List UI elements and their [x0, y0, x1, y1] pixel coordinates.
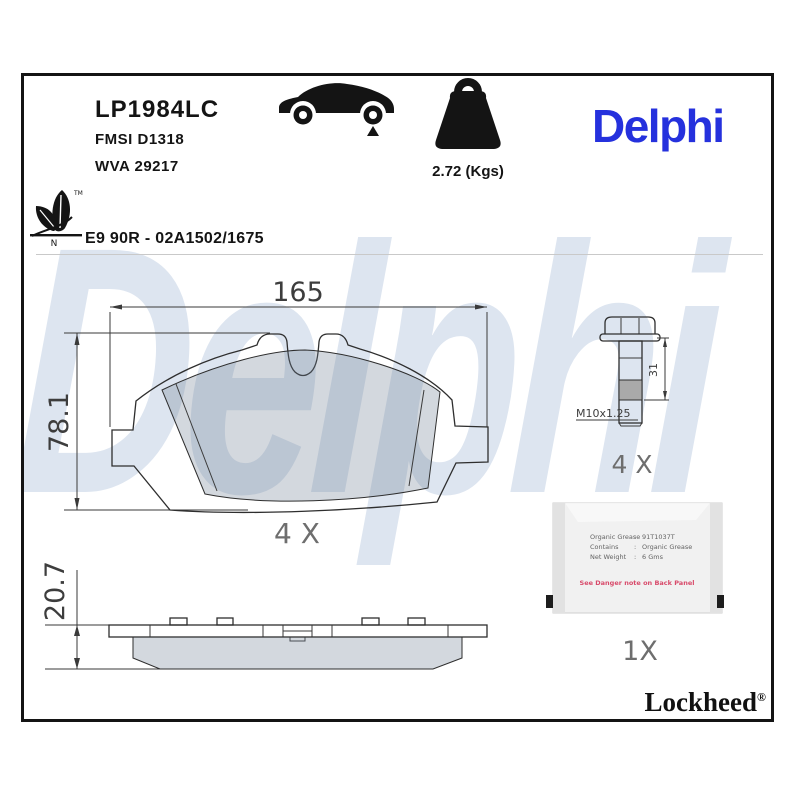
- registered-mark: ®: [757, 690, 766, 704]
- sachet-seal-left: [553, 503, 565, 613]
- front-hub: [299, 111, 307, 119]
- grease-line3-label: Net Weight: [590, 553, 627, 561]
- arrow-up: [663, 338, 667, 347]
- pad-quantity: 4 X: [274, 517, 320, 550]
- wva-reference: WVA 29217: [95, 158, 179, 175]
- thickness-dimension: 20.7: [40, 561, 71, 621]
- grease-colon: :: [634, 543, 636, 551]
- tear-notch-left: [546, 595, 553, 608]
- lockheed-text: Lockheed: [645, 687, 758, 717]
- tear-notch-right: [717, 595, 724, 608]
- part-number: LP1984LC: [95, 96, 219, 124]
- eco-n-label: N: [51, 239, 58, 249]
- sachet-sheen: [565, 503, 710, 522]
- grease-colon: :: [634, 553, 636, 561]
- header-divider: [36, 254, 763, 255]
- technical-drawing: 165 78.1 4 X 31: [20, 260, 780, 730]
- arrow-down: [663, 391, 667, 400]
- bolt-drawing: 31 M10x1.25 4 X: [576, 317, 669, 479]
- arrow-up: [74, 625, 80, 636]
- car-rear-axle-icon: [276, 80, 398, 142]
- plate-tab: [170, 618, 187, 625]
- friction-material: [162, 350, 440, 501]
- bolt-flange: [600, 334, 660, 341]
- width-dimension: 165: [272, 277, 324, 308]
- rear-hub: [369, 111, 377, 119]
- bolt-quantity: 4 X: [612, 450, 653, 479]
- eco-tm-label: TM: [73, 190, 83, 197]
- height-dimension: 78.1: [44, 392, 75, 452]
- fmsi-reference: FMSI D1318: [95, 131, 184, 148]
- pad-side-view: 20.7: [40, 561, 487, 669]
- delphi-logo: Delphi: [592, 99, 724, 153]
- arrow-down: [74, 658, 80, 669]
- plate-tab: [408, 618, 425, 625]
- grease-line3-value: 6 Gms: [642, 553, 664, 561]
- bolt-length-dimension: 31: [647, 363, 660, 377]
- arrow-right: [475, 305, 487, 310]
- arrow-down: [75, 498, 80, 510]
- weight-body: [435, 91, 500, 149]
- arrow-left: [110, 305, 122, 310]
- weight-value: 2.72 (Kgs): [406, 163, 530, 180]
- grease-warning: See Danger note on Back Panel: [580, 579, 695, 587]
- grease-line1-label: Organic Grease: [590, 533, 640, 541]
- lockheed-logo: Lockheed®: [645, 687, 766, 718]
- grease-quantity: 1X: [622, 636, 658, 667]
- bolt-thread-label: M10x1.25: [576, 407, 631, 420]
- grease-line2-label: Contains: [590, 543, 619, 551]
- grease-line1-value: 91T1037T: [642, 533, 675, 541]
- grease-colon: :: [634, 533, 636, 541]
- datasheet-page: Delphi LP1984LC FMSI D1318 WVA 29217 2.7…: [0, 0, 800, 800]
- rear-axle-marker-icon: [367, 126, 379, 136]
- arrow-up: [75, 333, 80, 345]
- plate-tab: [362, 618, 379, 625]
- bolt-thread-patch: [619, 380, 642, 400]
- grease-sachet: Organic Grease : 91T1037T Contains : Org…: [546, 503, 724, 667]
- weight-icon: [420, 76, 516, 168]
- friction-side: [133, 637, 462, 669]
- leaf-right-vein: [60, 195, 61, 228]
- homologation-number: E9 90R - 02A1502/1675: [85, 230, 264, 248]
- bolt-head: [605, 317, 655, 334]
- eco-baseline: [30, 234, 82, 236]
- grease-line2-value: Organic Grease: [642, 543, 692, 551]
- plate-tab: [217, 618, 233, 625]
